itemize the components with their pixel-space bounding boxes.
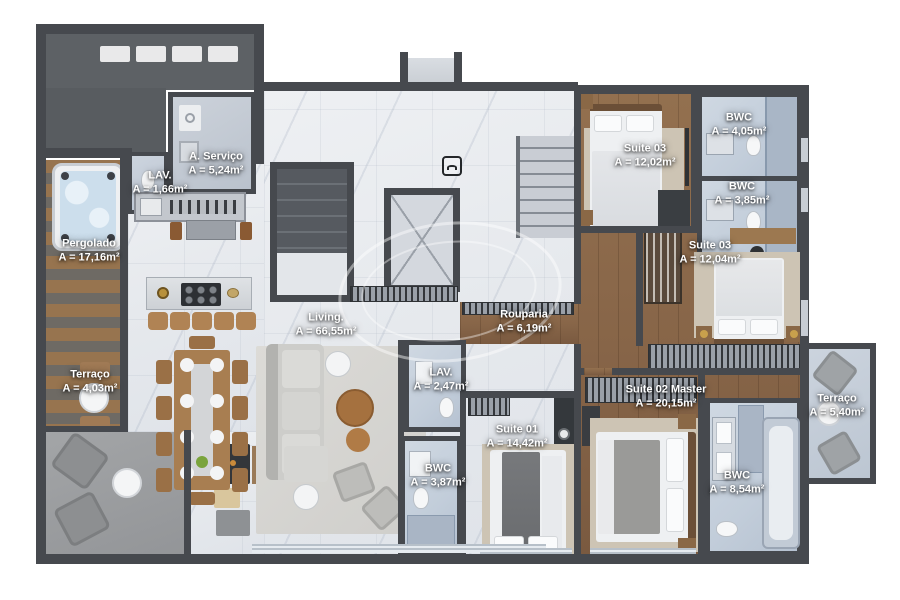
shaft-lower-cell [277, 257, 347, 295]
kitchen-sink [140, 198, 162, 216]
room-label: Suite 01A = 14,42m² [486, 423, 547, 452]
place-setting [210, 394, 224, 408]
outer-wall-left [36, 24, 46, 564]
room-name: Suite 03 [614, 142, 675, 156]
terrace2-wall-right [870, 343, 876, 484]
duvet [716, 260, 782, 316]
place-setting [180, 394, 194, 408]
bathtub-basin [769, 426, 793, 540]
room-label: A. ServiçoA = 5,24m² [189, 150, 244, 179]
equipment-unit [136, 46, 166, 62]
room-label: RoupariaA = 6,19m² [497, 308, 552, 337]
tv-panel [685, 128, 689, 186]
suite03b-wall-left [636, 226, 643, 346]
coffee-table-small [346, 428, 370, 452]
dining-chair [232, 432, 248, 456]
entry-stub-right [454, 52, 462, 90]
toilet [439, 397, 454, 418]
tech-wall-bottom [36, 148, 132, 158]
entry-access-icon [442, 156, 462, 176]
room-label: Suite 03A = 12,02m² [614, 142, 675, 171]
bed [714, 258, 784, 346]
room-area: A = 14,42m² [486, 437, 547, 451]
utensil-rail [170, 200, 236, 214]
room-label: BWCA = 8,54m² [710, 469, 765, 498]
equipment-unit [208, 46, 238, 62]
room-area: A = 4,03m² [63, 382, 118, 396]
side-table [325, 351, 351, 377]
bar-stool [192, 312, 212, 330]
lounge-side-table [112, 468, 142, 498]
washing-machine [179, 105, 201, 131]
equipment-unit [100, 46, 130, 62]
nightstand [678, 414, 696, 429]
island-decor [227, 288, 239, 298]
equipment-unit [172, 46, 202, 62]
dining-chair [232, 396, 248, 420]
room-label: Suite 03A = 12,04m² [679, 239, 740, 268]
room-name: LAV. [133, 169, 188, 183]
cooktop [181, 283, 221, 306]
living-east-wall [398, 340, 404, 556]
lounge-terrace-wall-top [42, 426, 128, 432]
range-hood [186, 220, 236, 240]
dining-chair [232, 360, 248, 384]
dining-chair [232, 468, 248, 492]
pillow [718, 319, 746, 335]
place-setting [210, 466, 224, 480]
room-area: A = 2,47m² [414, 380, 469, 394]
room-area: A = 4,05m² [712, 125, 767, 139]
hot-tub-jet [107, 172, 115, 180]
sofa-chaise [284, 446, 328, 482]
kitchen-island [146, 277, 252, 310]
bar-stool [170, 312, 190, 330]
duvet [598, 440, 660, 534]
room-name: BWC [710, 469, 765, 483]
place-setting [180, 358, 194, 372]
hot-tub-jet [61, 172, 69, 180]
coffee-table [336, 389, 374, 427]
pillow [666, 438, 684, 482]
room-label: BWCA = 3,87m² [411, 462, 466, 491]
hall-wall-top [258, 82, 578, 91]
prep-sink [157, 287, 169, 299]
hall-wing-divider-upper [574, 91, 581, 304]
sink [716, 422, 732, 444]
room-label: Suite 02 MasterA = 20,15m² [626, 383, 707, 412]
room-name: Suite 01 [486, 423, 547, 437]
room-label: BWCA = 3,85m² [715, 180, 770, 209]
terrace2-wall-top [800, 343, 876, 349]
terrace2-wall-bottom [800, 478, 876, 484]
suite01-wall-top [460, 391, 574, 398]
washer-door [185, 113, 195, 123]
hall-wing-divider-lower [574, 344, 581, 556]
room-area: A = 5,24m² [189, 164, 244, 178]
pillow [666, 488, 684, 532]
room-name: Terraço [63, 368, 118, 382]
dining-chair [156, 432, 172, 456]
storage-box [216, 510, 250, 536]
room-label: TerraçoA = 4,03m² [63, 368, 118, 397]
table-lamp [700, 330, 708, 338]
suite03-wardrobe [648, 344, 800, 370]
bottle [230, 460, 236, 466]
outer-wall-bottom [36, 554, 809, 564]
bathtub [762, 417, 800, 549]
lounge-terrace-wall-right [184, 430, 191, 556]
room-area: A = 8,54m² [710, 483, 765, 497]
window-sill [801, 300, 808, 336]
room-label: BWCA = 4,05m² [712, 111, 767, 140]
toilet [716, 521, 738, 537]
window-sill [801, 188, 808, 212]
bwc-387-room [400, 436, 462, 556]
room-area: A = 17,16m² [58, 251, 119, 265]
place-setting [210, 430, 224, 444]
bed [596, 432, 696, 542]
outer-wall-top-tech [36, 24, 264, 34]
tech-wall-right [254, 24, 264, 164]
entry-access-glyph [447, 165, 457, 170]
bar-stool [148, 312, 168, 330]
room-area: A = 5,40m² [810, 406, 865, 420]
room-area: A = 12,02m² [614, 156, 675, 170]
shower-area [765, 97, 797, 176]
bed [490, 450, 566, 556]
open-closet [644, 228, 682, 304]
room-name: Suite 02 Master [626, 383, 707, 397]
room-name: Terraço [810, 392, 865, 406]
pergolado-wall-right [120, 150, 128, 432]
staircase [516, 136, 574, 238]
sofa-cushion [282, 350, 320, 388]
pillow [626, 115, 654, 132]
place-setting [210, 358, 224, 372]
room-area: A = 1,66m² [133, 183, 188, 197]
master-door-gap [584, 368, 612, 375]
sofa-cushion [282, 392, 320, 430]
room-area: A = 3,87m² [411, 476, 466, 490]
dining-chair [156, 360, 172, 384]
room-area: A = 12,04m² [679, 253, 740, 267]
suite03-wall-right [691, 92, 698, 232]
bar-stool [214, 312, 234, 330]
suite01-cabinet [468, 396, 510, 416]
speaker [558, 428, 570, 440]
dining-chair [189, 492, 215, 505]
room-name: Living. [295, 311, 356, 325]
shaft-upper-cell [277, 169, 347, 253]
room-area: A = 3,85m² [715, 194, 770, 208]
master-window [590, 548, 696, 554]
wardrobe-unit [658, 190, 690, 226]
room-area: A = 66,55m² [295, 325, 356, 339]
pillow [750, 319, 778, 335]
cutting-board [240, 222, 252, 240]
room-label: PergoladoA = 17,16m² [58, 237, 119, 266]
room-label: Living.A = 66,55m² [295, 311, 356, 340]
entry-stub-left [400, 52, 408, 90]
room-label: LAV.A = 2,47m² [414, 366, 469, 395]
room-name: Rouparia [497, 308, 552, 322]
room-area: A = 20,15m² [626, 397, 707, 411]
shower-area [738, 405, 764, 473]
side-table [293, 484, 319, 510]
room-area: A = 6,19m² [497, 322, 552, 336]
sheet [542, 456, 562, 548]
suite01-window [480, 548, 572, 554]
dining-chair [156, 396, 172, 420]
dining-chair [189, 336, 215, 349]
floorplan: PergoladoA = 17,16m²LAV.A = 1,66m²A. Ser… [0, 0, 900, 600]
table-plant [196, 456, 208, 468]
dining-chair [156, 468, 172, 492]
room-label: TerraçoA = 5,40m² [810, 392, 865, 421]
window-sill [801, 138, 808, 162]
toilet [413, 487, 429, 509]
room-label: LAV.A = 1,66m² [133, 169, 188, 198]
room-name: Pergolado [58, 237, 119, 251]
table-lamp [790, 330, 798, 338]
hot-tub-water [60, 171, 116, 243]
room-name: BWC [715, 180, 770, 194]
pillow [594, 115, 622, 132]
room-name: Suite 03 [679, 239, 740, 253]
wing-cross-wall [578, 368, 806, 375]
shower-area [407, 515, 455, 547]
room-name: A. Serviço [189, 150, 244, 164]
room-name: LAV. [414, 366, 469, 380]
room-name: BWC [712, 111, 767, 125]
cutting-board [170, 222, 182, 240]
room-name: BWC [411, 462, 466, 476]
bar-stool [236, 312, 256, 330]
nightstand [696, 326, 712, 342]
